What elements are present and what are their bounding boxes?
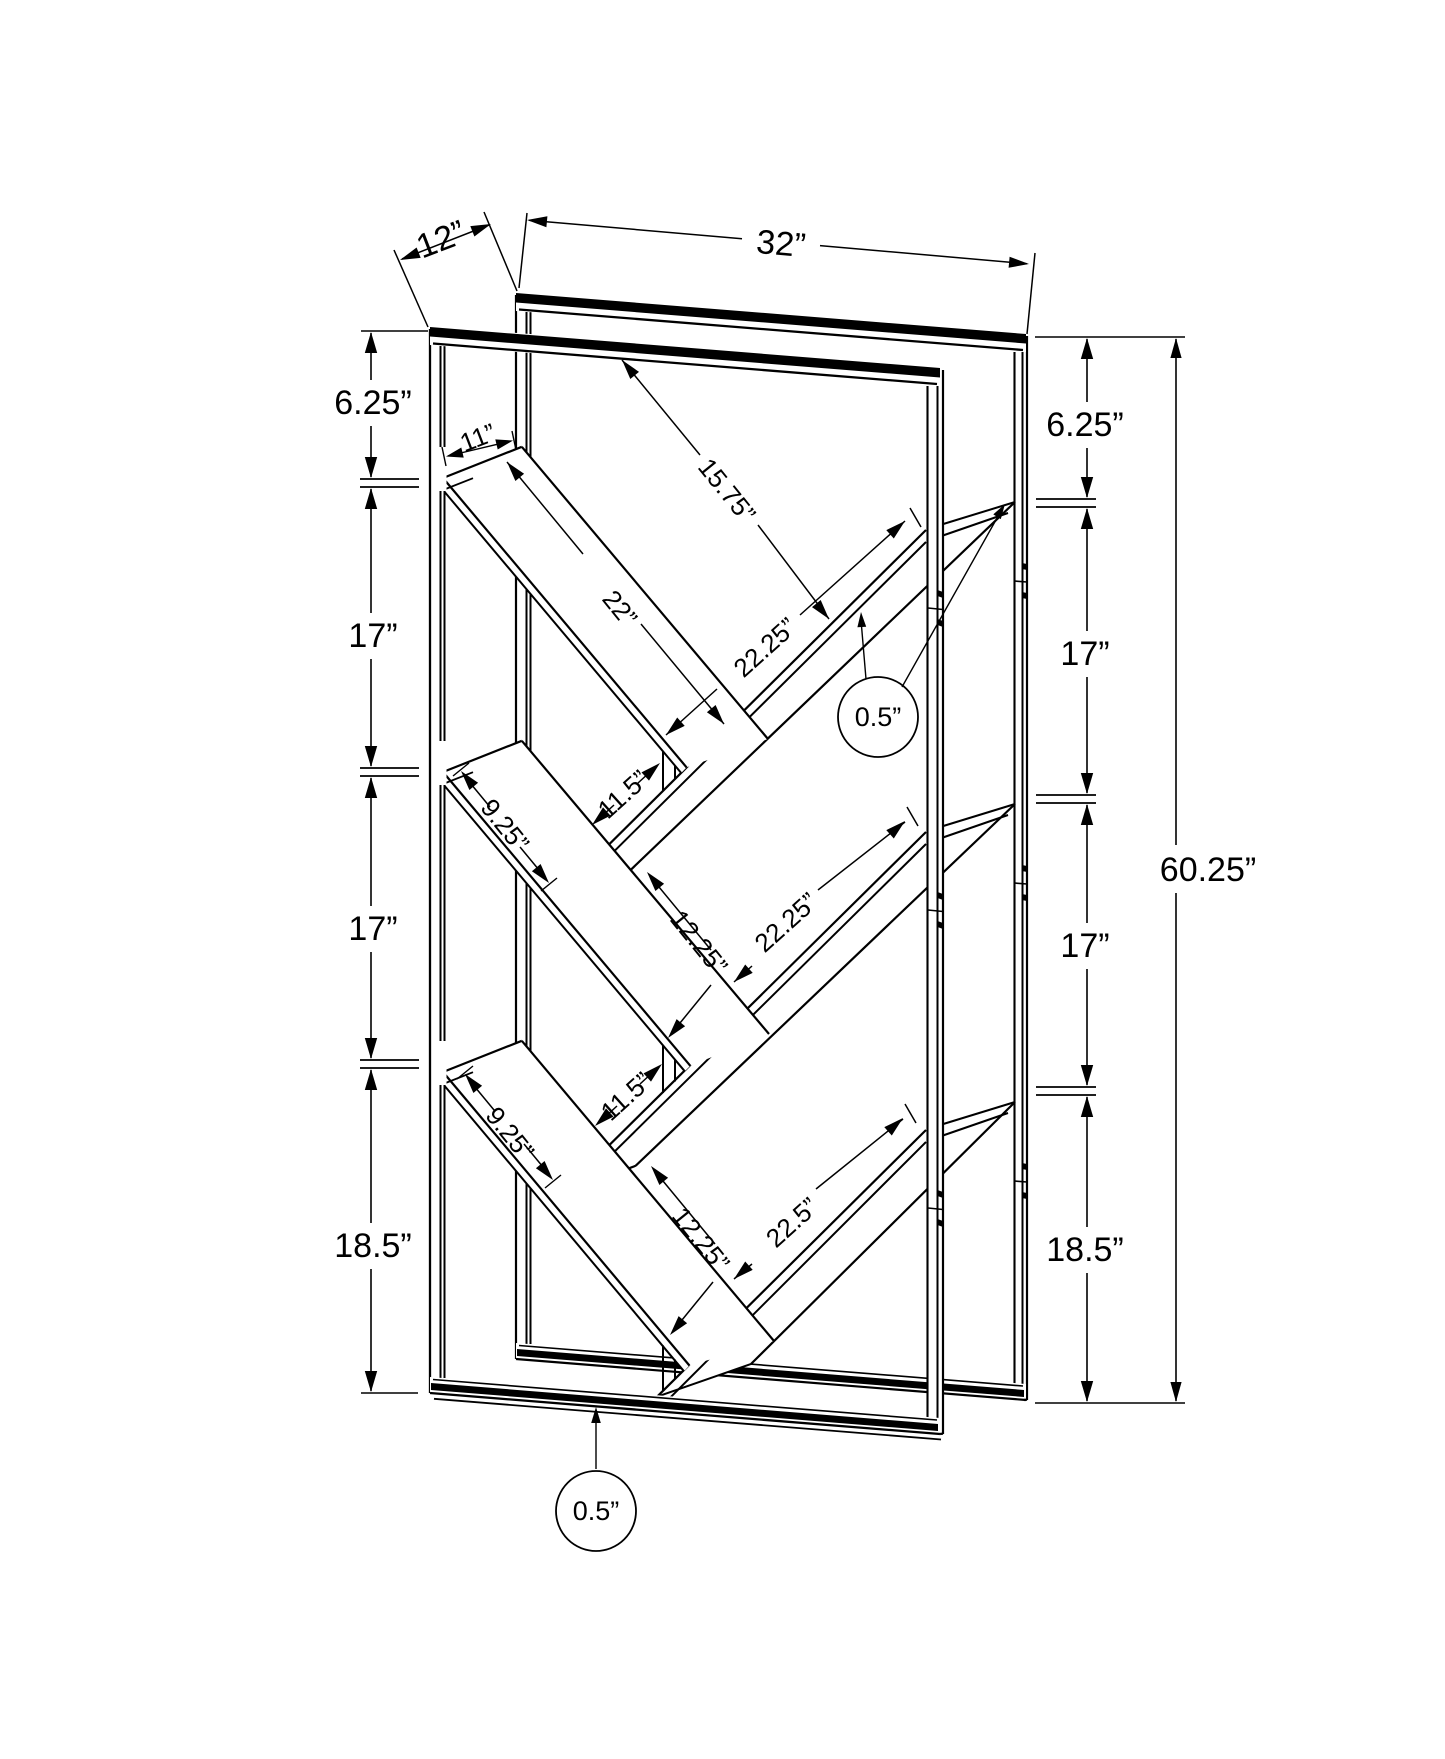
svg-text:0.5”: 0.5” [573, 1496, 620, 1526]
svg-text:0.5”: 0.5” [855, 702, 902, 732]
svg-text:12”: 12” [411, 213, 470, 266]
svg-text:15.75”: 15.75” [692, 452, 762, 528]
svg-text:17”: 17” [1060, 927, 1109, 965]
svg-text:32”: 32” [755, 223, 807, 265]
svg-text:17”: 17” [348, 617, 397, 655]
svg-text:6.25”: 6.25” [1046, 406, 1124, 444]
svg-text:17”: 17” [348, 910, 397, 948]
svg-text:18.5”: 18.5” [334, 1227, 412, 1265]
svg-text:17”: 17” [1060, 635, 1109, 673]
svg-text:18.5”: 18.5” [1046, 1231, 1124, 1269]
svg-text:6.25”: 6.25” [334, 384, 412, 422]
svg-text:60.25”: 60.25” [1160, 851, 1256, 889]
